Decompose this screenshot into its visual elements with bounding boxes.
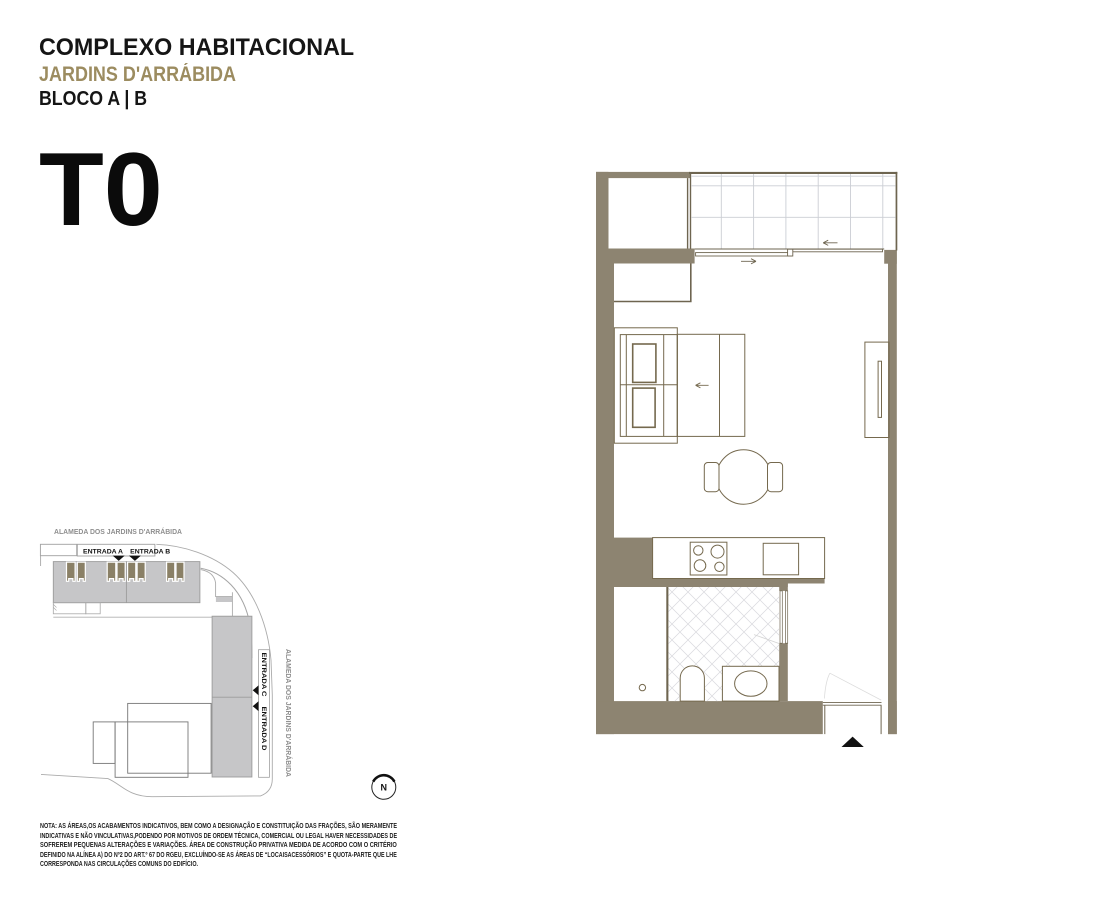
svg-text:ENTRADA B: ENTRADA B xyxy=(130,548,170,555)
svg-text:N: N xyxy=(381,783,388,793)
svg-text:ENTRADA A: ENTRADA A xyxy=(83,548,123,555)
svg-text:ALAMEDA DOS JARDINS D'ARRÁBIDA: ALAMEDA DOS JARDINS D'ARRÁBIDA xyxy=(284,649,293,777)
svg-text:ALAMEDA DOS JARDINS D'ARRÁBIDA: ALAMEDA DOS JARDINS D'ARRÁBIDA xyxy=(54,527,182,536)
svg-text:ENTRADA C: ENTRADA C xyxy=(260,653,267,697)
svg-text:ENTRADA D: ENTRADA D xyxy=(260,707,267,751)
